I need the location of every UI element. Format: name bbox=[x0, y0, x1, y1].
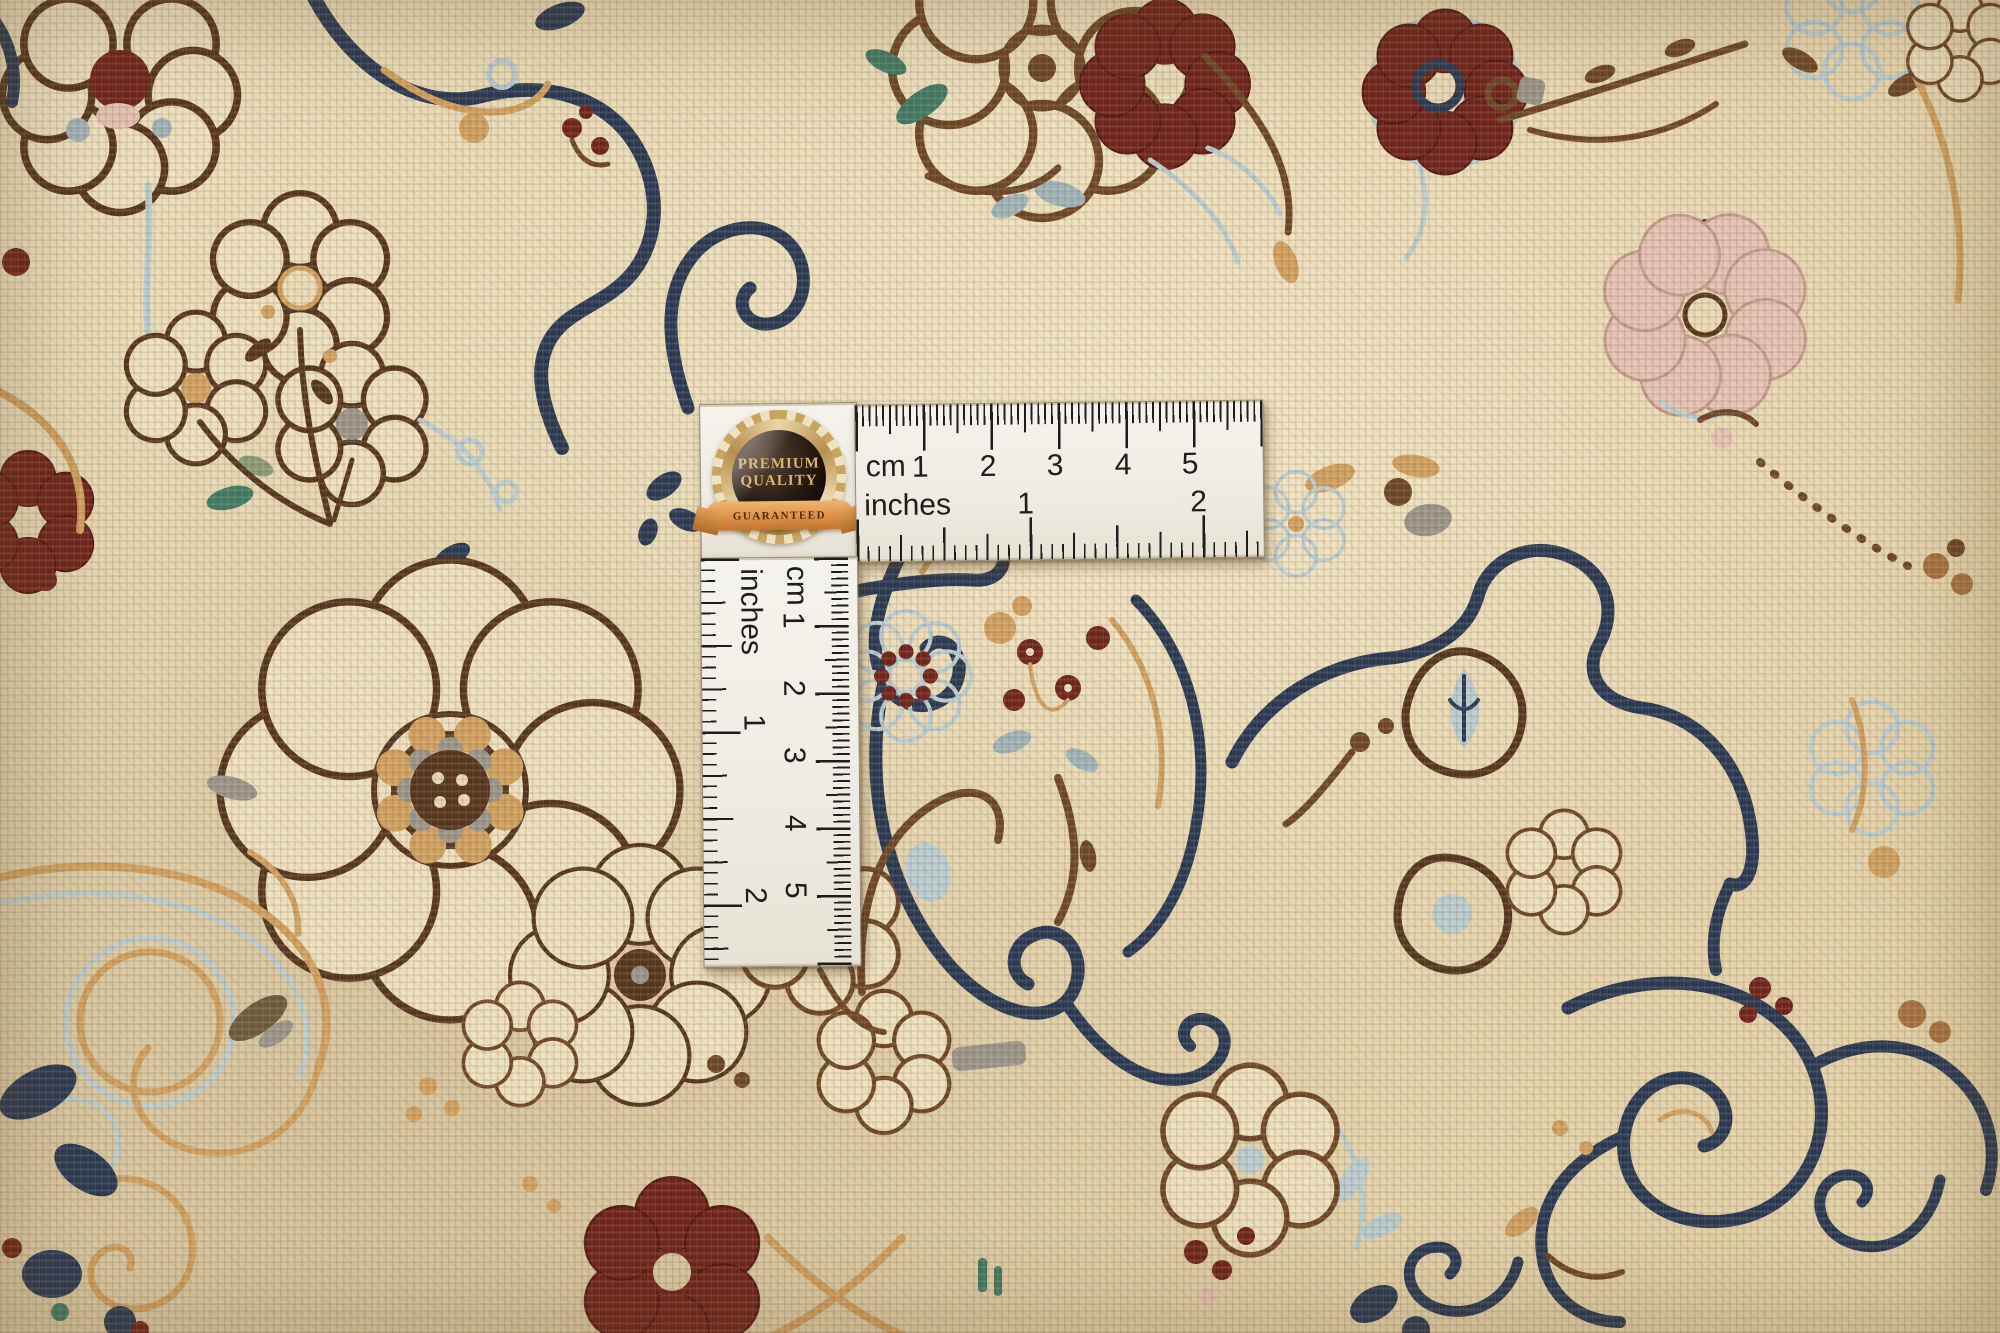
motif-pink-star-flower bbox=[1568, 178, 1841, 451]
badge-ribbon: GUARANTEED bbox=[706, 500, 852, 531]
ruler-vertical-cm-ticks bbox=[814, 557, 852, 965]
ruler-horizontal: cm 1 2 3 4 5 inches 1 2 bbox=[854, 400, 1265, 563]
inch-number: 2 bbox=[740, 887, 770, 904]
rug-pattern-svg bbox=[0, 0, 2000, 1333]
cm-number: 5 bbox=[1182, 449, 1199, 479]
inch-number: 2 bbox=[1190, 487, 1207, 517]
motif-rosette-top-left bbox=[0, 0, 238, 348]
cm-number: 1 bbox=[912, 453, 929, 483]
motif-flower-top-right bbox=[862, 0, 1304, 286]
cm-number: 3 bbox=[1047, 451, 1064, 481]
ruler-vertical: cm 1 2 3 4 5 inches 1 2 bbox=[700, 556, 862, 967]
inches-unit-label: inches bbox=[735, 568, 766, 655]
rug-photo: PREMIUM QUALITY GUARANTEED cm 1 2 3 4 5 … bbox=[0, 0, 2000, 1333]
badge-line2: QUALITY bbox=[732, 472, 826, 490]
inches-unit-label: inches bbox=[864, 490, 951, 521]
motif-bouquet-left bbox=[116, 193, 516, 605]
cm-number: 2 bbox=[980, 452, 997, 482]
cm-number: 2 bbox=[778, 680, 808, 697]
motif-top-right-corner bbox=[1777, 0, 2000, 300]
cm-number: 4 bbox=[779, 815, 809, 832]
cm-number: 5 bbox=[780, 882, 810, 899]
premium-quality-badge: PREMIUM QUALITY GUARANTEED bbox=[699, 402, 859, 562]
cm-unit-label: cm bbox=[781, 566, 811, 606]
cm-number: 1 bbox=[777, 612, 807, 629]
badge-line1: PREMIUM bbox=[732, 455, 826, 473]
cm-number: 3 bbox=[779, 747, 809, 764]
inch-number: 1 bbox=[738, 714, 768, 731]
cm-unit-label: cm bbox=[866, 452, 906, 482]
inch-number: 1 bbox=[1017, 489, 1034, 519]
cm-number: 4 bbox=[1115, 450, 1132, 480]
ruler-horizontal-cm-ticks bbox=[855, 401, 1263, 452]
motif-navy-scrolls-bottom-right bbox=[1150, 700, 1992, 1333]
